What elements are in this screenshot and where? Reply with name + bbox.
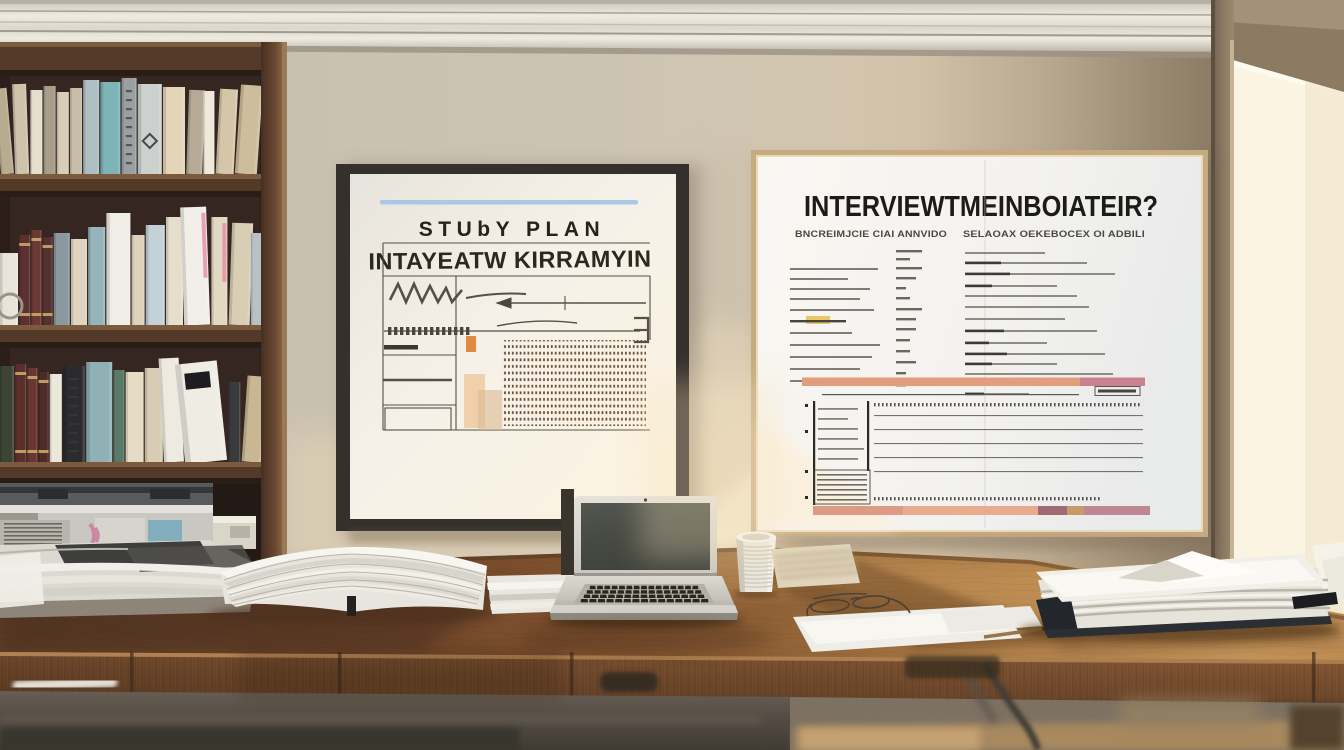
svg-text:BNCREIMJCIE CIAI ANNVIDO: BNCREIMJCIE CIAI ANNVIDO (795, 229, 947, 239)
svg-text:SELAOAX OEKEBOCEX OI ADBILI: SELAOAX OEKEBOCEX OI ADBILI (963, 229, 1145, 239)
svg-text:INTERVIEWTMEINBOIATEIR?: INTERVIEWTMEINBOIATEIR? (804, 191, 1158, 223)
svg-text:INTAYEATW KIRRAMYIN: INTAYEATW KIRRAMYIN (368, 246, 651, 275)
svg-text:STUbY PLAN: STUbY PLAN (419, 218, 605, 241)
